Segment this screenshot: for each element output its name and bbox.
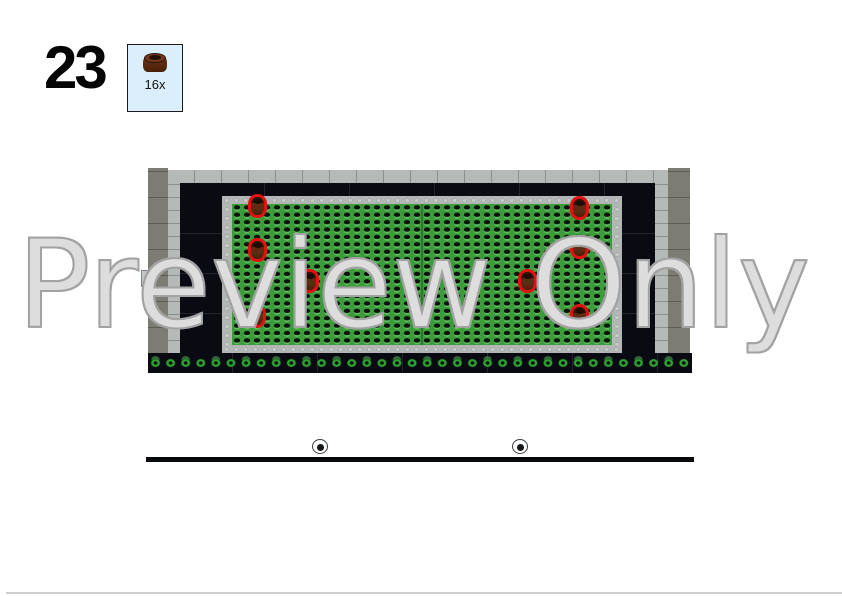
- preview-watermark: Preview Only: [17, 224, 810, 346]
- brown-round-plate-icon: [143, 56, 167, 72]
- road-wheel-disc: [312, 439, 328, 454]
- parts-callout: 16x: [127, 44, 183, 112]
- road-wheel-disc: [512, 439, 528, 454]
- part-count: 16x: [145, 77, 166, 92]
- instruction-page: 23 16x: [0, 0, 842, 596]
- step-number: 23: [44, 38, 105, 98]
- page-divider: [6, 592, 842, 594]
